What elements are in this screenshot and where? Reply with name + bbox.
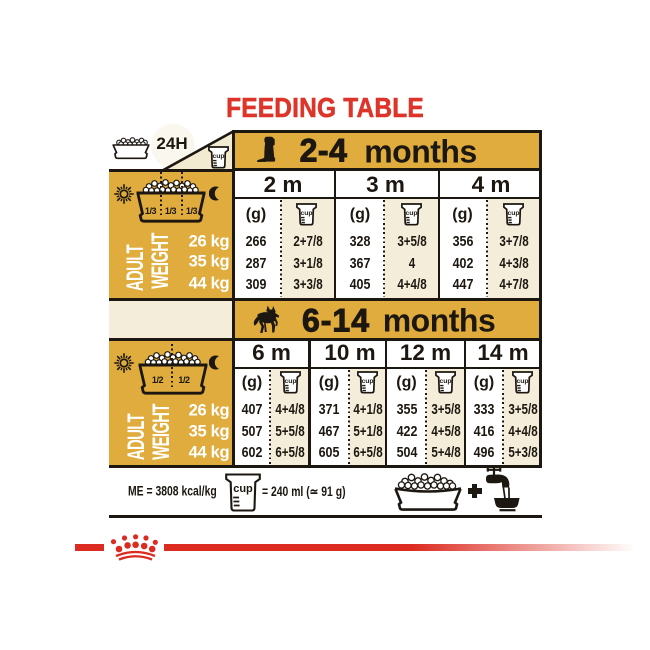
svg-text:cup: cup — [233, 483, 253, 495]
